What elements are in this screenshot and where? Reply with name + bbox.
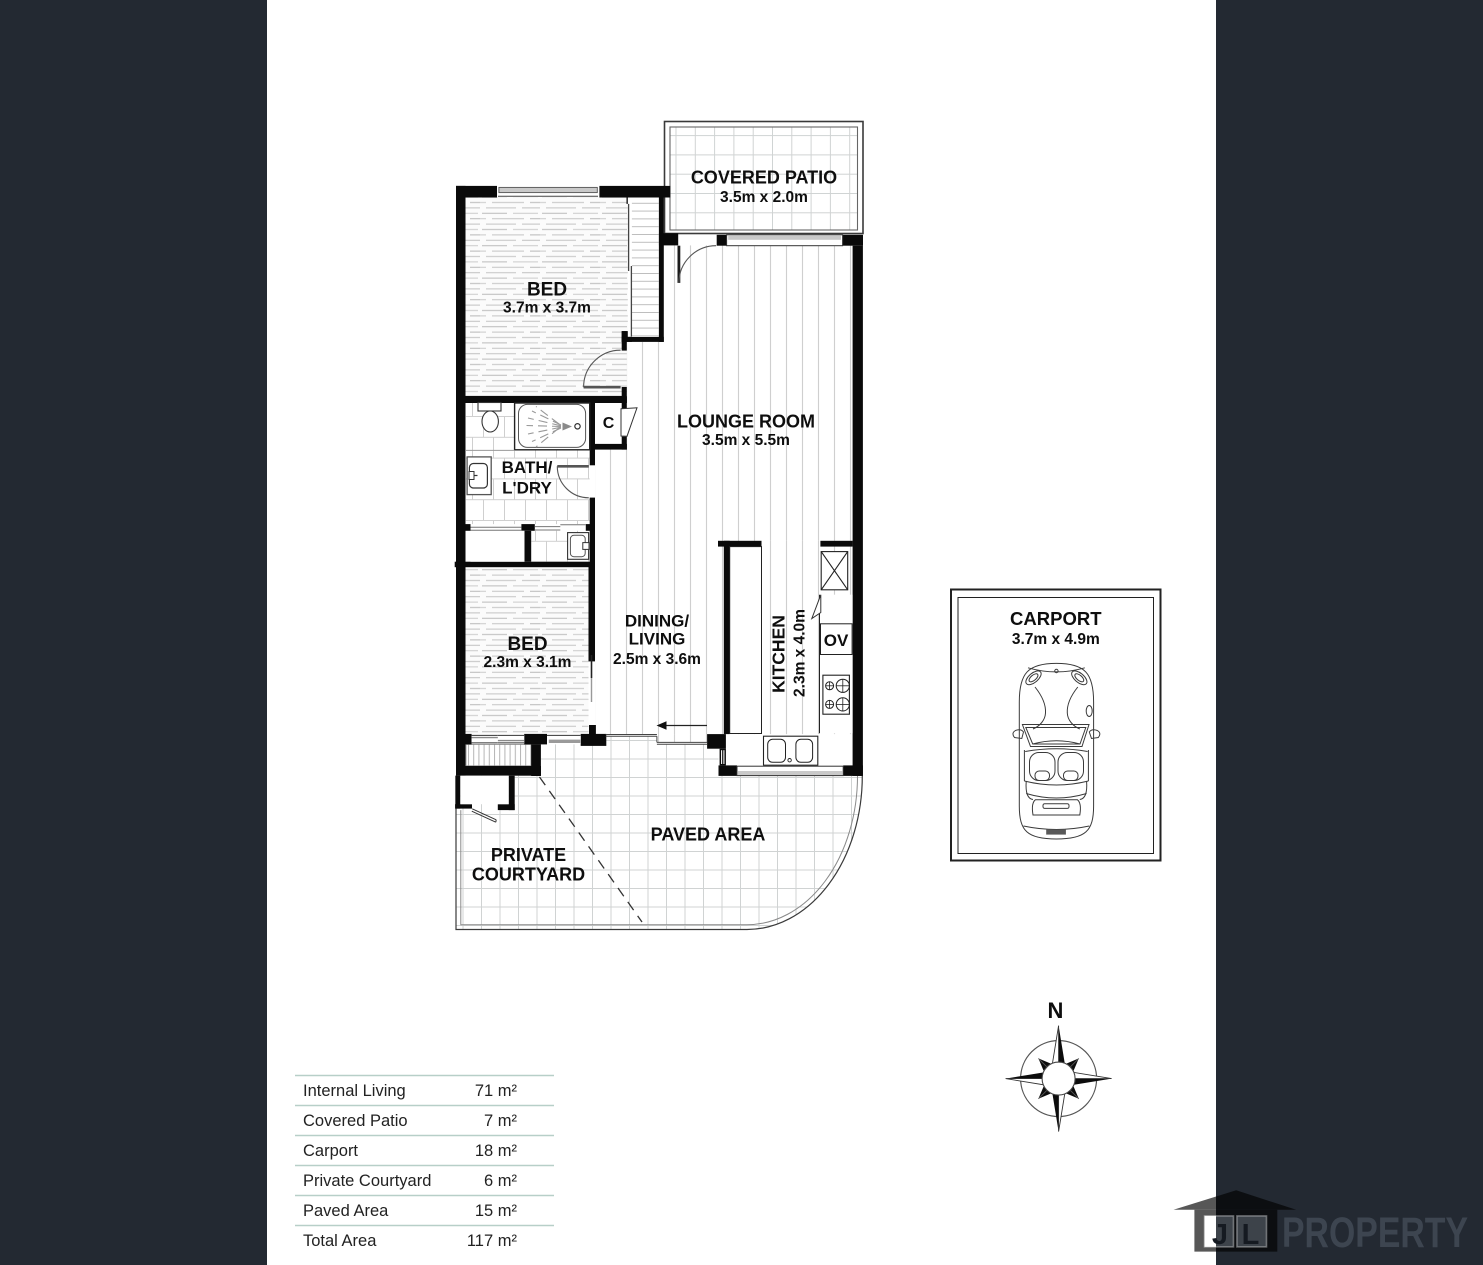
- svg-text:2.5m x 3.6m: 2.5m x 3.6m: [613, 651, 701, 668]
- svg-text:117 m²: 117 m²: [467, 1232, 518, 1250]
- svg-text:LOUNGE ROOM: LOUNGE ROOM: [677, 412, 815, 432]
- svg-text:C: C: [603, 415, 615, 432]
- svg-text:Private Courtyard: Private Courtyard: [303, 1172, 431, 1190]
- svg-text:2.3m x 3.1m: 2.3m x 3.1m: [484, 654, 572, 671]
- svg-text:6 m²: 6 m²: [484, 1172, 518, 1190]
- svg-text:COURTYARD: COURTYARD: [472, 865, 585, 885]
- svg-text:LIVING: LIVING: [629, 630, 686, 649]
- svg-text:7 m²: 7 m²: [484, 1112, 518, 1130]
- svg-text:3.5m x 2.0m: 3.5m x 2.0m: [720, 189, 808, 206]
- svg-text:L: L: [1242, 1219, 1260, 1251]
- svg-text:Internal Living: Internal Living: [303, 1082, 406, 1100]
- svg-text:OV: OV: [824, 631, 849, 650]
- svg-text:COVERED PATIO: COVERED PATIO: [691, 168, 837, 188]
- svg-text:PAVED AREA: PAVED AREA: [651, 825, 766, 845]
- svg-text:J: J: [1212, 1219, 1228, 1251]
- svg-text:CARPORT: CARPORT: [1010, 608, 1102, 629]
- svg-text:BATH/: BATH/: [502, 458, 553, 477]
- svg-text:N: N: [1048, 998, 1064, 1023]
- svg-text:L'DRY: L'DRY: [502, 479, 552, 498]
- svg-text:PRIVATE: PRIVATE: [491, 845, 566, 865]
- svg-text:3.5m x 5.5m: 3.5m x 5.5m: [702, 432, 790, 449]
- svg-text:15 m²: 15 m²: [475, 1202, 518, 1220]
- svg-text:BED: BED: [527, 280, 567, 301]
- svg-text:PROPERTY: PROPERTY: [1282, 1209, 1468, 1257]
- svg-text:Total Area: Total Area: [303, 1232, 377, 1250]
- svg-text:Carport: Carport: [303, 1142, 358, 1160]
- svg-text:18 m²: 18 m²: [475, 1142, 518, 1160]
- svg-text:3.7m x 4.9m: 3.7m x 4.9m: [1012, 631, 1100, 648]
- svg-text:BED: BED: [507, 634, 547, 655]
- svg-text:DINING/: DINING/: [625, 612, 690, 631]
- svg-text:3.7m x 3.7m: 3.7m x 3.7m: [503, 300, 591, 317]
- svg-text:2.3m x 4.0m: 2.3m x 4.0m: [792, 609, 809, 697]
- svg-text:71 m²: 71 m²: [475, 1082, 518, 1100]
- svg-text:Covered Patio: Covered Patio: [303, 1112, 408, 1130]
- svg-text:Paved Area: Paved Area: [303, 1202, 389, 1220]
- svg-text:KITCHEN: KITCHEN: [769, 615, 789, 693]
